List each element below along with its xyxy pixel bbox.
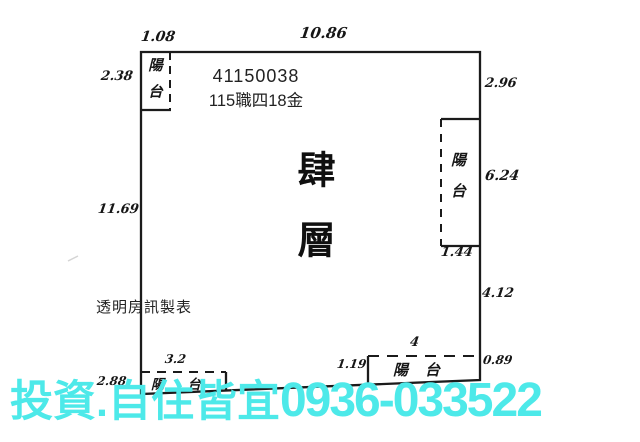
dim-bottomleft-balcony-width: 3.2 <box>164 352 187 366</box>
plan-case-code: 115職四18金 <box>194 87 318 111</box>
advert-watermark-phone: 0936-033522 <box>280 374 541 427</box>
maker-label: 透明房訊製表 <box>96 296 192 317</box>
balcony-label-topleft: 陽台 <box>144 57 165 110</box>
dim-left-height: 11.69 <box>97 202 140 217</box>
dim-top-left-width: 1.08 <box>140 29 176 45</box>
dim-bottom-gap: 1.19 <box>336 357 367 371</box>
advert-watermark: 投資.自住皆宜0936-033522 <box>10 377 541 425</box>
floorplan-page: 41150038 115職四18金 肆層 透明房訊製表 陽台 陽台 陽台 陽台 … <box>0 0 640 442</box>
dim-right-balcony-depth: 1.44 <box>440 245 474 260</box>
dim-right-upper: 2.96 <box>484 76 518 91</box>
dim-right-bottom: 0.89 <box>482 353 513 367</box>
advert-watermark-text: 投資.自住皆宜 <box>10 378 280 426</box>
dim-right-lower: 4.12 <box>481 286 515 301</box>
balcony-label-right: 陽台 <box>448 152 469 214</box>
scan-smudge <box>68 256 78 261</box>
plan-id-number: 41150038 <box>199 66 313 87</box>
dim-right-balcony-height: 6.24 <box>484 168 520 184</box>
floor-title: 肆層 <box>286 150 341 290</box>
dim-top-width: 10.86 <box>299 24 349 42</box>
dim-left-upper: 2.38 <box>100 69 134 84</box>
